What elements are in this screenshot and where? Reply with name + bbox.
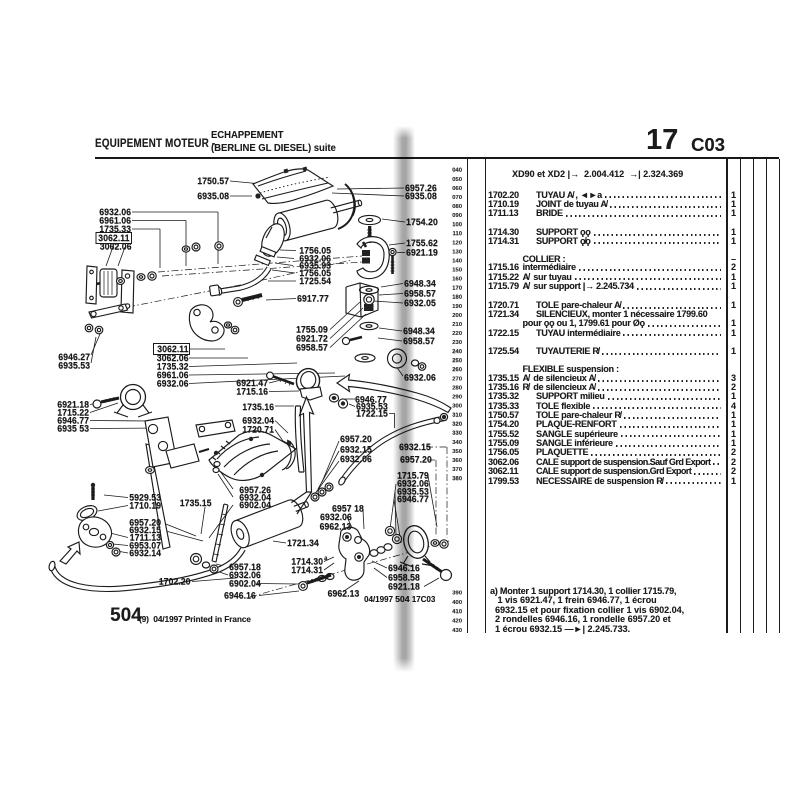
svg-text:6932.15: 6932.15 [340,445,372,455]
svg-text:6958.57: 6958.57 [296,343,328,353]
svg-text:040: 040 [452,168,463,174]
svg-text:190: 190 [452,304,463,310]
svg-text:050: 050 [452,177,463,183]
svg-text:1715.16: 1715.16 [236,387,268,397]
svg-text:1735.16: 1735.16 [242,402,274,412]
svg-text:260: 260 [452,367,463,373]
svg-text:6957.20: 6957.20 [340,434,372,444]
svg-text:120: 120 [452,240,463,246]
svg-text:1714.31: 1714.31 [291,565,323,575]
svg-text:6932.06: 6932.06 [340,454,372,464]
svg-text:1722.15: 1722.15 [356,409,388,419]
svg-text:1721.34: 1721.34 [287,538,319,548]
svg-text:6902.04: 6902.04 [229,579,261,589]
svg-text:430: 430 [452,628,463,634]
svg-text:6935 53: 6935 53 [57,424,89,434]
svg-text:320: 320 [452,422,463,428]
svg-text:180: 180 [452,295,463,301]
svg-text:240: 240 [452,349,463,355]
svg-text:280: 280 [452,385,463,391]
svg-text:380: 380 [452,476,463,482]
svg-text:1750.57: 1750.57 [197,176,229,186]
svg-text:170: 170 [452,286,463,292]
svg-text:1710.19: 1710.19 [129,501,161,511]
svg-text:270: 270 [452,376,463,382]
svg-text:390: 390 [452,591,463,597]
svg-text:6946.16: 6946.16 [224,591,256,601]
svg-text:100: 100 [452,222,463,228]
svg-text:1702.20: 1702.20 [159,577,191,587]
svg-text:6932.14: 6932.14 [129,548,161,558]
svg-text:150: 150 [452,268,463,274]
svg-text:6917.77: 6917.77 [297,294,329,304]
svg-text:290: 290 [452,394,463,400]
svg-text:410: 410 [452,609,463,615]
svg-text:070: 070 [452,195,463,201]
svg-text:370: 370 [452,467,463,473]
svg-text:210: 210 [452,322,463,328]
svg-text:080: 080 [452,204,463,210]
svg-text:1735.15: 1735.15 [180,498,212,508]
svg-text:6935.53: 6935.53 [58,361,90,371]
svg-text:060: 060 [452,186,463,192]
svg-text:360: 360 [452,458,463,464]
svg-text:200: 200 [452,313,463,319]
svg-text:1725.54: 1725.54 [299,276,331,286]
svg-text:160: 160 [452,277,463,283]
svg-text:220: 220 [452,331,463,337]
svg-text:420: 420 [452,619,463,625]
svg-text:350: 350 [452,449,463,455]
svg-text:6932.06: 6932.06 [157,379,189,389]
svg-text:6962.13: 6962.13 [320,522,352,532]
svg-text:400: 400 [452,600,463,606]
svg-text:6902.04: 6902.04 [239,500,271,510]
svg-text:330: 330 [452,431,463,437]
svg-text:090: 090 [452,213,463,219]
svg-text:6932.06: 6932.06 [320,512,352,522]
svg-text:310: 310 [452,413,463,419]
svg-text:110: 110 [452,231,462,237]
svg-text:a: a [324,556,328,562]
svg-text:340: 340 [452,440,463,446]
svg-text:6962.13: 6962.13 [328,589,360,599]
svg-text:6935.08: 6935.08 [197,191,229,201]
svg-text:230: 230 [452,340,463,346]
svg-text:1720.71: 1720.71 [242,425,274,435]
svg-text:130: 130 [452,249,463,255]
svg-text:140: 140 [452,258,463,264]
svg-text:250: 250 [452,358,463,364]
svg-text:300: 300 [452,404,463,410]
